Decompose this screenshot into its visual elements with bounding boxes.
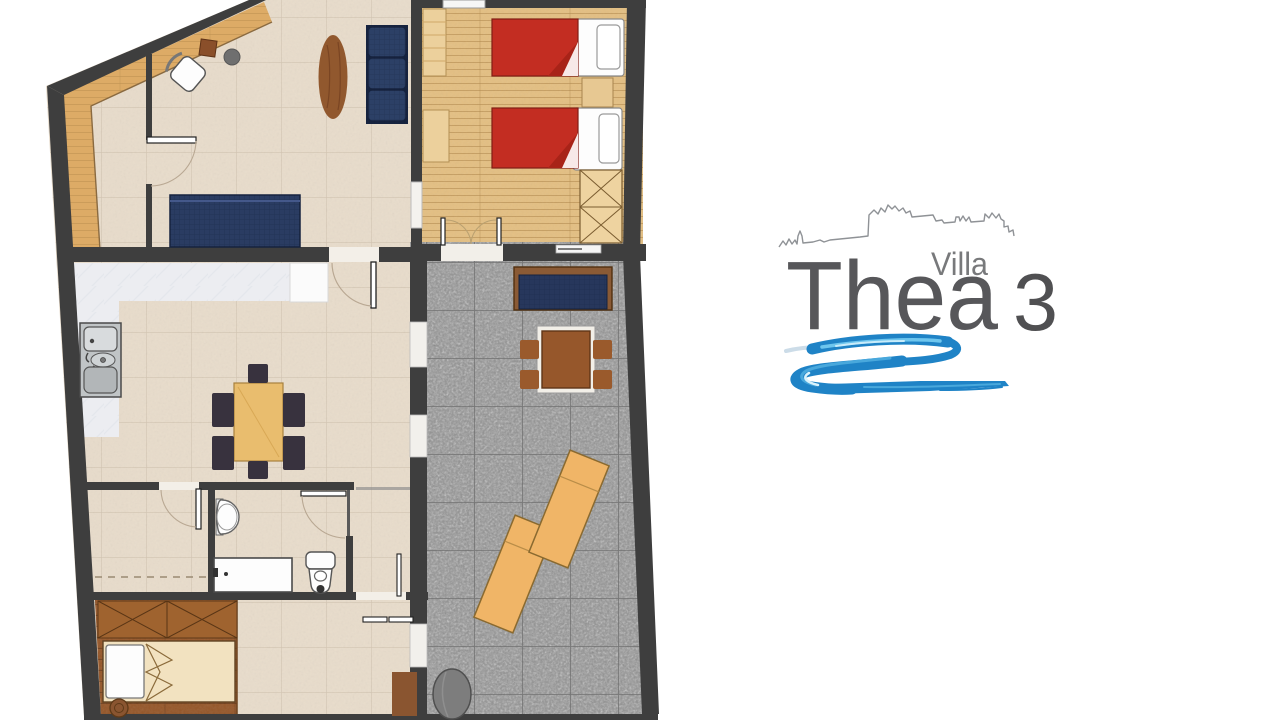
svg-text:3: 3 [1013, 258, 1058, 348]
svg-text:Thea: Thea [786, 241, 998, 350]
